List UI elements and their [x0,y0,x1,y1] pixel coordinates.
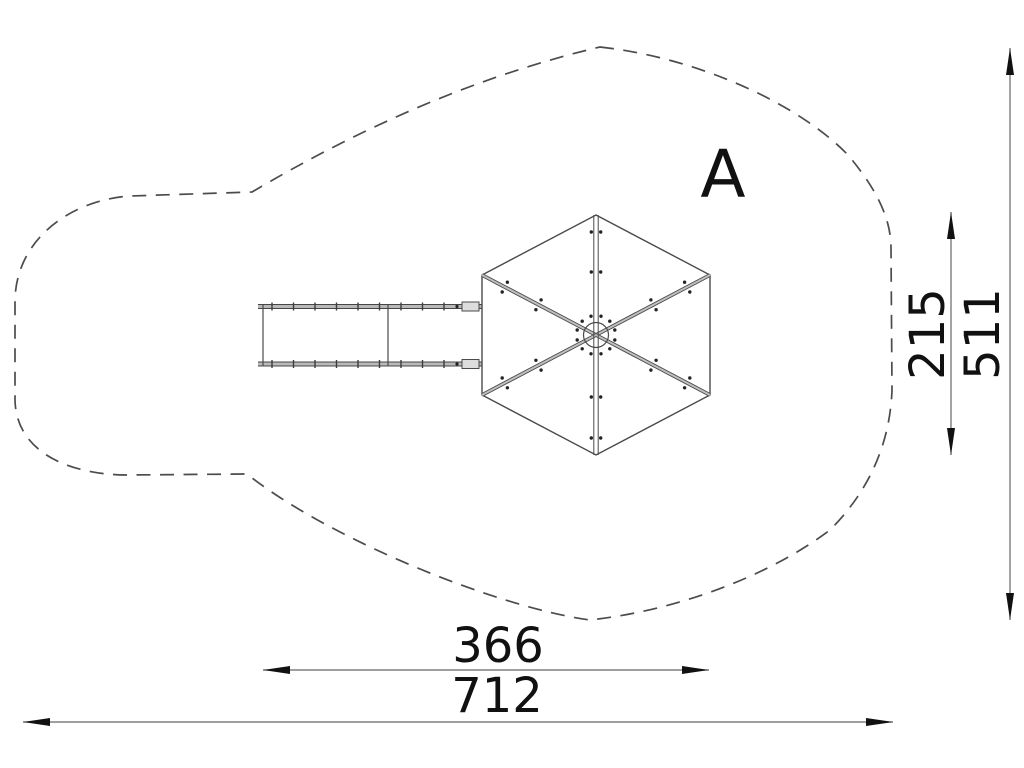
bolt-dot [688,290,691,293]
bolt-dot [539,368,542,371]
dimension-total-depth: 511 [955,48,1014,620]
bolt-dot [613,338,616,341]
bolt-dot [581,347,584,350]
bolt-dot [589,352,592,355]
bolt-dot [649,298,652,301]
technical-drawing-page: A 366 712 215 511 [0,0,1024,768]
dimension-structure-depth: 215 [900,212,956,455]
slide-plan [258,302,482,369]
dimension-structure-depth-value: 215 [900,288,956,380]
bolt-dot [683,281,686,284]
slide-bolt-top [455,305,458,308]
bolt-dot [654,308,657,311]
bolt-dot [576,338,579,341]
bolt-dot [576,328,579,331]
arrow-up-icon [1006,48,1014,75]
playground-plan-drawing: A 366 712 215 511 [0,0,1024,768]
hexagon-beams [482,275,710,395]
bolt-dot [534,359,537,362]
arrow-up-icon [947,212,955,239]
arrow-left-icon [23,718,50,726]
bolt-dot [688,376,691,379]
dimension-total-width: 712 [23,668,893,726]
slide-clamp-top [462,302,479,311]
slide-bolt-bottom [455,362,458,365]
bolt-dot [501,376,504,379]
bolt-dot [599,352,602,355]
bolt-dot [599,395,602,398]
arrow-down-icon [947,428,955,455]
hexagon-platform [482,215,710,455]
arrow-left-icon [263,666,290,674]
safety-zone-outline [15,47,892,620]
bolt-dot [581,320,584,323]
dimension-total-depth-value: 511 [955,288,1011,380]
bolt-dot [590,230,593,233]
bolt-dot [590,395,593,398]
area-label: A [700,136,745,213]
bolt-dot [506,281,509,284]
bolt-dot [599,270,602,273]
slide-clamp-bottom [462,360,479,369]
bolt-dot [683,386,686,389]
bolt-dot [506,386,509,389]
bolt-dot [534,308,537,311]
bolt-dot [613,328,616,331]
bolt-dot [654,359,657,362]
dimension-structure-width-value: 366 [452,618,544,674]
bolt-dot [599,230,602,233]
dimension-total-width-value: 712 [451,668,543,724]
arrow-down-icon [1006,593,1014,620]
bolt-dot [590,270,593,273]
bolt-dot [649,368,652,371]
bolt-dot [608,347,611,350]
slide-screw-ticks [272,303,444,369]
bolt-dot [589,315,592,318]
bolt-dot [599,315,602,318]
arrow-right-icon [682,666,709,674]
bolt-dot [501,290,504,293]
bolt-dot [599,436,602,439]
bolt-dot [608,320,611,323]
dimension-structure-width: 366 [263,618,709,674]
bolt-dot [590,436,593,439]
bolt-dot [539,298,542,301]
arrow-right-icon [866,718,893,726]
